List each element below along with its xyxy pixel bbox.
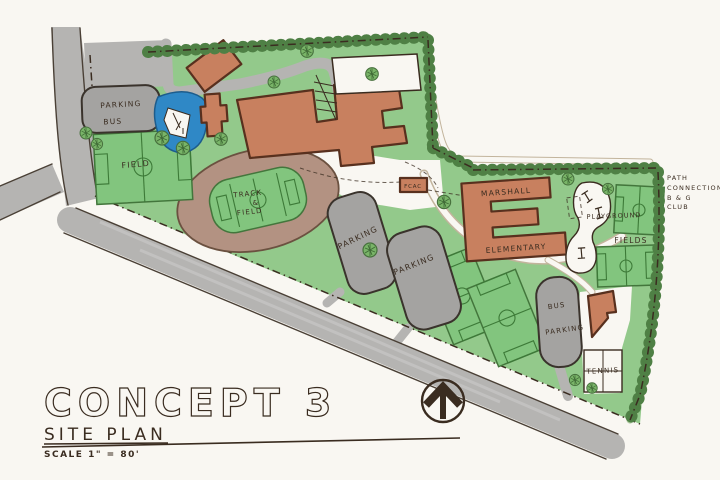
plan-scale: SCALE 1" = 80' xyxy=(44,450,140,460)
parking-nw-bus-label: BUS xyxy=(103,117,122,127)
plan-subtitle: SITE PLAN xyxy=(44,425,167,445)
track-label-amp: & xyxy=(253,199,260,207)
field-east-lower xyxy=(596,245,655,287)
path-note-line4: CLUB xyxy=(667,203,689,211)
plan-title: CONCEPT 3 xyxy=(44,381,337,425)
site-plan-drawing: TRACK & FIELD FIELD FIELD xyxy=(0,0,720,480)
path-note-line1: PATH xyxy=(667,174,688,182)
fields-east-label: FIELDS xyxy=(614,236,647,245)
north-arrow-icon xyxy=(422,380,464,422)
fcac-label: FCAC xyxy=(404,184,422,190)
bus-parking-lot xyxy=(535,276,583,369)
site-plan-sketch: TRACK & FIELD FIELD FIELD xyxy=(0,0,720,480)
path-note-line2: CONNECTION xyxy=(667,184,720,192)
path-note-line3: B & G xyxy=(667,194,692,202)
subtitle-underline xyxy=(44,443,168,444)
